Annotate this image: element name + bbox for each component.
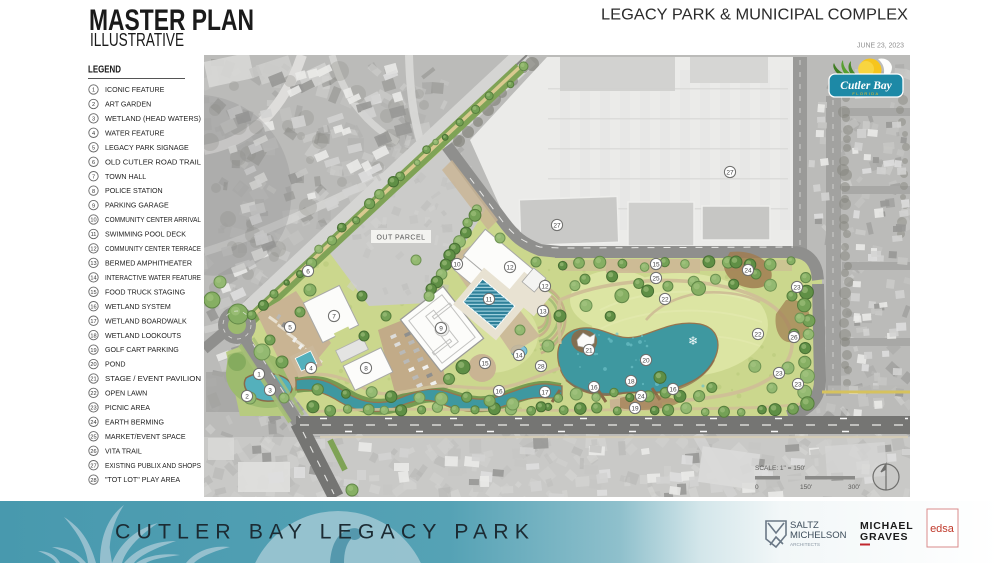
svg-text:POLICE STATION: POLICE STATION <box>105 187 163 195</box>
svg-text:2: 2 <box>92 102 95 108</box>
svg-text:5: 5 <box>288 324 292 331</box>
svg-text:23: 23 <box>793 284 801 291</box>
svg-text:7: 7 <box>332 313 336 320</box>
svg-text:21: 21 <box>585 347 593 354</box>
svg-text:PARKING GARAGE: PARKING GARAGE <box>105 202 169 210</box>
svg-text:27: 27 <box>553 222 561 229</box>
svg-text:ARCHITECTS: ARCHITECTS <box>790 542 820 548</box>
svg-text:OPEN LAWN: OPEN LAWN <box>105 390 147 398</box>
svg-text:COMMUNITY CENTER ARRIVAL: COMMUNITY CENTER ARRIVAL <box>105 216 201 224</box>
svg-text:MICHELSON: MICHELSON <box>790 530 847 541</box>
svg-text:16: 16 <box>90 304 96 310</box>
svg-text:22: 22 <box>754 331 762 338</box>
svg-text:6: 6 <box>306 268 310 275</box>
svg-text:3: 3 <box>268 387 272 394</box>
svg-text:19: 19 <box>631 405 639 412</box>
svg-text:WETLAND (HEAD WATERS): WETLAND (HEAD WATERS) <box>105 115 201 123</box>
svg-text:BERMED AMPHITHEATER: BERMED AMPHITHEATER <box>105 260 192 268</box>
svg-text:24: 24 <box>637 393 645 400</box>
svg-text:MARKET/EVENT SPACE: MARKET/EVENT SPACE <box>105 433 186 441</box>
svg-text:300': 300' <box>848 484 860 491</box>
svg-text:20: 20 <box>90 362 96 368</box>
svg-text:INTERACTIVE WATER FEATURE: INTERACTIVE WATER FEATURE <box>105 274 201 282</box>
svg-text:15: 15 <box>481 360 489 367</box>
svg-text:18: 18 <box>90 333 96 339</box>
svg-text:28: 28 <box>537 363 545 370</box>
svg-text:21: 21 <box>90 377 96 383</box>
svg-text:GRAVES: GRAVES <box>860 531 908 543</box>
svg-text:12: 12 <box>90 247 96 253</box>
svg-text:15: 15 <box>652 261 660 268</box>
svg-text:8: 8 <box>92 189 95 195</box>
svg-text:23: 23 <box>775 370 783 377</box>
svg-text:23: 23 <box>794 381 802 388</box>
svg-text:19: 19 <box>90 348 96 354</box>
svg-text:23: 23 <box>90 406 96 412</box>
svg-text:JUNE 23, 2023: JUNE 23, 2023 <box>857 41 904 50</box>
svg-text:11: 11 <box>486 296 493 303</box>
svg-text:24: 24 <box>744 267 752 274</box>
svg-text:26: 26 <box>790 334 798 341</box>
svg-text:OUT PARCEL: OUT PARCEL <box>376 235 425 242</box>
svg-text:ICONIC FEATURE: ICONIC FEATURE <box>105 86 165 94</box>
svg-text:150': 150' <box>800 484 812 491</box>
svg-text:12: 12 <box>541 283 549 290</box>
svg-text:PICNIC AREA: PICNIC AREA <box>105 404 150 412</box>
svg-text:TOWN HALL: TOWN HALL <box>105 173 146 181</box>
svg-text:CUTLER BAY LEGACY PARK: CUTLER BAY LEGACY PARK <box>115 521 535 544</box>
svg-text:OLD CUTLER ROAD TRAIL: OLD CUTLER ROAD TRAIL <box>105 158 201 166</box>
svg-text:SCALE: 1" = 150': SCALE: 1" = 150' <box>755 465 805 472</box>
svg-text:2: 2 <box>245 393 249 400</box>
svg-text:0: 0 <box>755 484 759 491</box>
svg-text:16: 16 <box>669 386 677 393</box>
svg-text:EXISTING PUBLIX AND SHOPS: EXISTING PUBLIX AND SHOPS <box>105 462 201 470</box>
svg-text:edsa: edsa <box>930 523 955 535</box>
svg-text:EARTH BERMING: EARTH BERMING <box>105 418 164 426</box>
svg-text:POND: POND <box>105 361 126 369</box>
svg-text:FOOD TRUCK STAGING: FOOD TRUCK STAGING <box>105 288 185 296</box>
svg-text:STAGE / EVENT PAVILION: STAGE / EVENT PAVILION <box>105 375 201 383</box>
svg-text:9: 9 <box>439 325 443 332</box>
svg-text:27: 27 <box>726 169 734 176</box>
svg-text:COMMUNITY CENTER TERRACE: COMMUNITY CENTER TERRACE <box>105 245 201 253</box>
svg-text:9: 9 <box>92 203 95 209</box>
svg-text:12: 12 <box>506 264 514 271</box>
svg-text:LEGACY PARK & MUNICIPAL COMPLE: LEGACY PARK & MUNICIPAL COMPLEX <box>601 7 908 24</box>
svg-text:GOLF CART PARKING: GOLF CART PARKING <box>105 346 179 354</box>
svg-text:6: 6 <box>92 160 95 166</box>
svg-text:14: 14 <box>90 276 96 282</box>
svg-text:1: 1 <box>92 88 95 94</box>
svg-text:13: 13 <box>539 308 547 315</box>
svg-text:WETLAND LOOKOUTS: WETLAND LOOKOUTS <box>105 332 181 340</box>
svg-text:20: 20 <box>642 357 650 364</box>
svg-text:27: 27 <box>90 463 96 469</box>
svg-text:5: 5 <box>92 146 95 152</box>
svg-text:WATER FEATURE: WATER FEATURE <box>105 129 165 137</box>
svg-text:26: 26 <box>90 449 96 455</box>
svg-text:LEGEND: LEGEND <box>88 64 121 76</box>
svg-text:WETLAND SYSTEM: WETLAND SYSTEM <box>105 303 171 311</box>
svg-text:FLORIDA: FLORIDA <box>852 91 879 96</box>
svg-text:4: 4 <box>92 131 95 137</box>
svg-text:ILLUSTRATIVE: ILLUSTRATIVE <box>90 30 184 50</box>
svg-text:LEGACY PARK SIGNAGE: LEGACY PARK SIGNAGE <box>105 144 189 152</box>
svg-text:13: 13 <box>90 261 96 267</box>
svg-text:WETLAND BOARDWALK: WETLAND BOARDWALK <box>105 317 187 325</box>
svg-text:22: 22 <box>90 391 96 397</box>
svg-text:22: 22 <box>661 296 669 303</box>
svg-text:18: 18 <box>627 378 635 385</box>
svg-text:25: 25 <box>652 275 660 282</box>
svg-text:17: 17 <box>541 389 549 396</box>
svg-text:❄: ❄ <box>688 334 698 348</box>
svg-text:16: 16 <box>495 388 503 395</box>
svg-text:10: 10 <box>453 261 461 268</box>
svg-text:10: 10 <box>90 218 96 224</box>
svg-text:ART GARDEN: ART GARDEN <box>105 101 151 109</box>
svg-text:25: 25 <box>90 435 96 441</box>
svg-text:VITA TRAIL: VITA TRAIL <box>105 447 142 455</box>
svg-text:SWIMMING POOL DECK: SWIMMING POOL DECK <box>105 231 186 239</box>
svg-text:4: 4 <box>309 365 313 372</box>
svg-text:15: 15 <box>90 290 96 296</box>
svg-text:16: 16 <box>590 384 598 391</box>
svg-text:3: 3 <box>92 117 95 123</box>
svg-text:28: 28 <box>90 478 96 484</box>
svg-text:"TOT LOT" PLAY AREA: "TOT LOT" PLAY AREA <box>105 476 180 484</box>
svg-text:8: 8 <box>364 365 368 372</box>
svg-text:24: 24 <box>90 420 96 426</box>
svg-text:17: 17 <box>90 319 96 325</box>
svg-text:14: 14 <box>515 352 523 359</box>
svg-text:1: 1 <box>257 371 261 378</box>
svg-text:7: 7 <box>92 174 95 180</box>
svg-text:11: 11 <box>91 232 97 238</box>
